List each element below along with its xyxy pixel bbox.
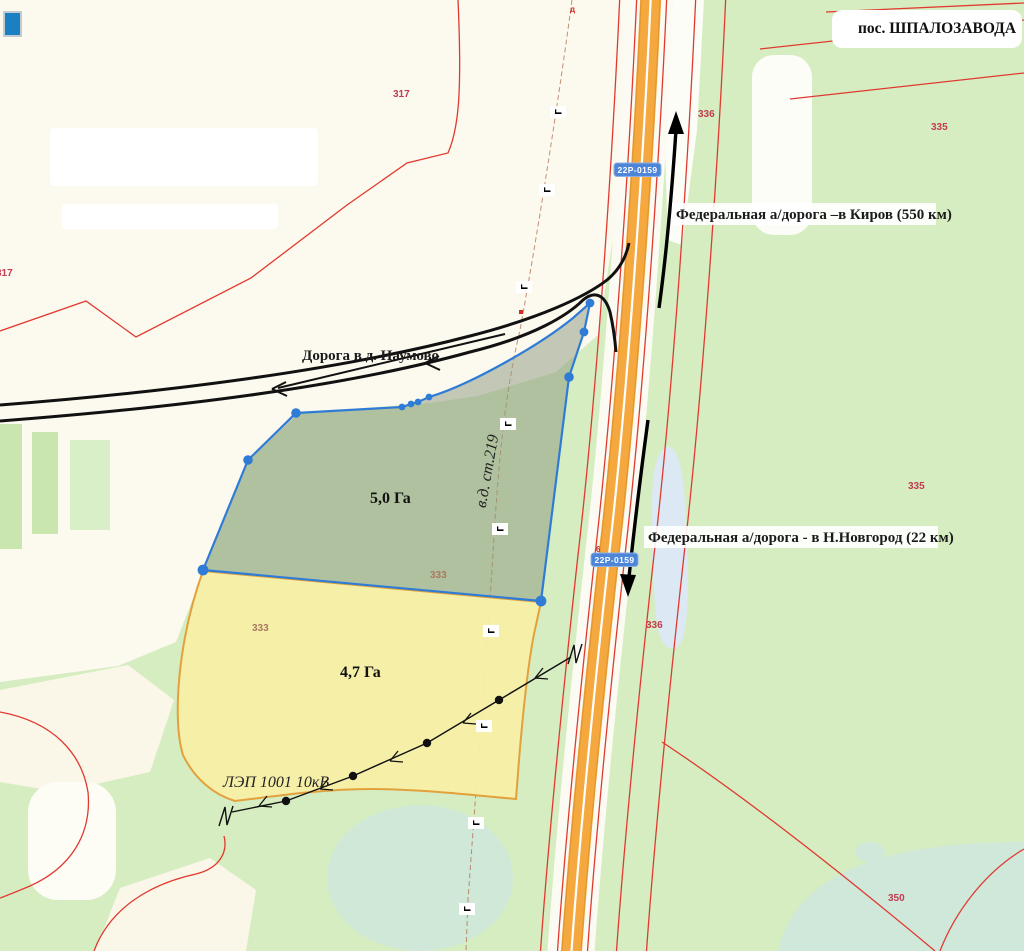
power-line-label: ЛЭП 1001 10кВ [222,774,329,791]
power-pole [282,797,290,805]
svg-text:Г: Г [521,284,531,290]
plot-vertex[interactable] [415,399,422,406]
plot-vertex[interactable] [408,401,415,408]
parcel-number: 336 [698,109,715,120]
plot-vertex[interactable] [564,372,574,382]
parcel-number: 333 [252,623,269,634]
parcel-number: 335 [908,481,925,492]
cadastral-map: Г Г Г Г Г Г Г Г Г 22Р-0159 22Р-0159 6 д … [0,0,1024,951]
parcel-number: 350 [888,893,905,904]
pond-small [855,842,885,862]
road-badge-label: 22Р-0159 [617,165,657,175]
pipeline-marker: Г [476,720,492,732]
pipeline-marker: Г [550,106,566,118]
svg-text:Г: Г [488,628,498,634]
white-patch [62,204,278,229]
green-stripe [32,432,58,534]
settlement-label: пос. ШПАЛОЗАВОДА [858,20,1017,37]
green-stripe [0,424,22,549]
km-marker: 6 [596,545,601,554]
svg-text:Г: Г [497,526,507,532]
plot-vertex[interactable] [426,394,433,401]
pipeline-marker: Г [468,817,484,829]
plot-yellow-area-label: 4,7 Га [340,664,381,681]
plot-vertex[interactable] [586,299,595,308]
pipeline-marker-glyph: Г [555,109,565,115]
road-badge-south[interactable]: 22Р-0159 [591,553,638,567]
plot-vertex[interactable] [399,404,406,411]
top-marker: д [570,5,575,14]
parcel-number: 317 [0,268,13,279]
direction-kirov-label: Федеральная а/дорога –в Киров (550 км) [676,207,952,223]
pipeline-marker: Г [483,625,499,637]
white-patch [28,782,116,900]
pipeline-node [519,310,523,314]
plot-green-area-label: 5,0 Га [370,490,411,507]
plot-vertex[interactable] [580,328,589,337]
green-stripe [70,440,110,530]
svg-text:Г: Г [544,187,554,193]
parcel-number: 317 [393,89,410,100]
power-pole [423,739,431,747]
pipeline-marker: Г [500,418,516,430]
white-patch [50,128,318,186]
pipeline-marker: Г [492,523,508,535]
pipeline-marker: Г [516,281,532,293]
plot-vertex[interactable] [198,565,209,576]
pipeline-marker: Г [459,903,475,915]
land-plot-yellow[interactable] [178,571,541,801]
direction-novgorod-label: Федеральная а/дорога - в Н.Новгород (22 … [648,530,954,546]
svg-text:Г: Г [473,820,483,826]
svg-text:Г: Г [481,723,491,729]
map-control-icon[interactable] [4,12,21,36]
plot-vertex[interactable] [536,596,547,607]
svg-text:Г: Г [505,421,515,427]
lake [327,805,513,951]
parcel-number: 336 [646,620,663,631]
power-pole [495,696,503,704]
plot-vertex[interactable] [243,455,253,465]
svg-text:Г: Г [464,906,474,912]
road-badge-north[interactable]: 22Р-0159 [614,163,661,177]
plot-vertex[interactable] [291,408,301,418]
power-pole [349,772,357,780]
parcel-number: 335 [931,122,948,133]
local-road-label: Дорога в д. Наумово [302,348,439,364]
parcel-number: 333 [430,570,447,581]
road-badge-label: 22Р-0159 [594,555,634,565]
map-canvas: Г Г Г Г Г Г Г Г Г 22Р-0159 22Р-0159 6 д … [0,0,1024,951]
pipeline-marker: Г [539,184,555,196]
